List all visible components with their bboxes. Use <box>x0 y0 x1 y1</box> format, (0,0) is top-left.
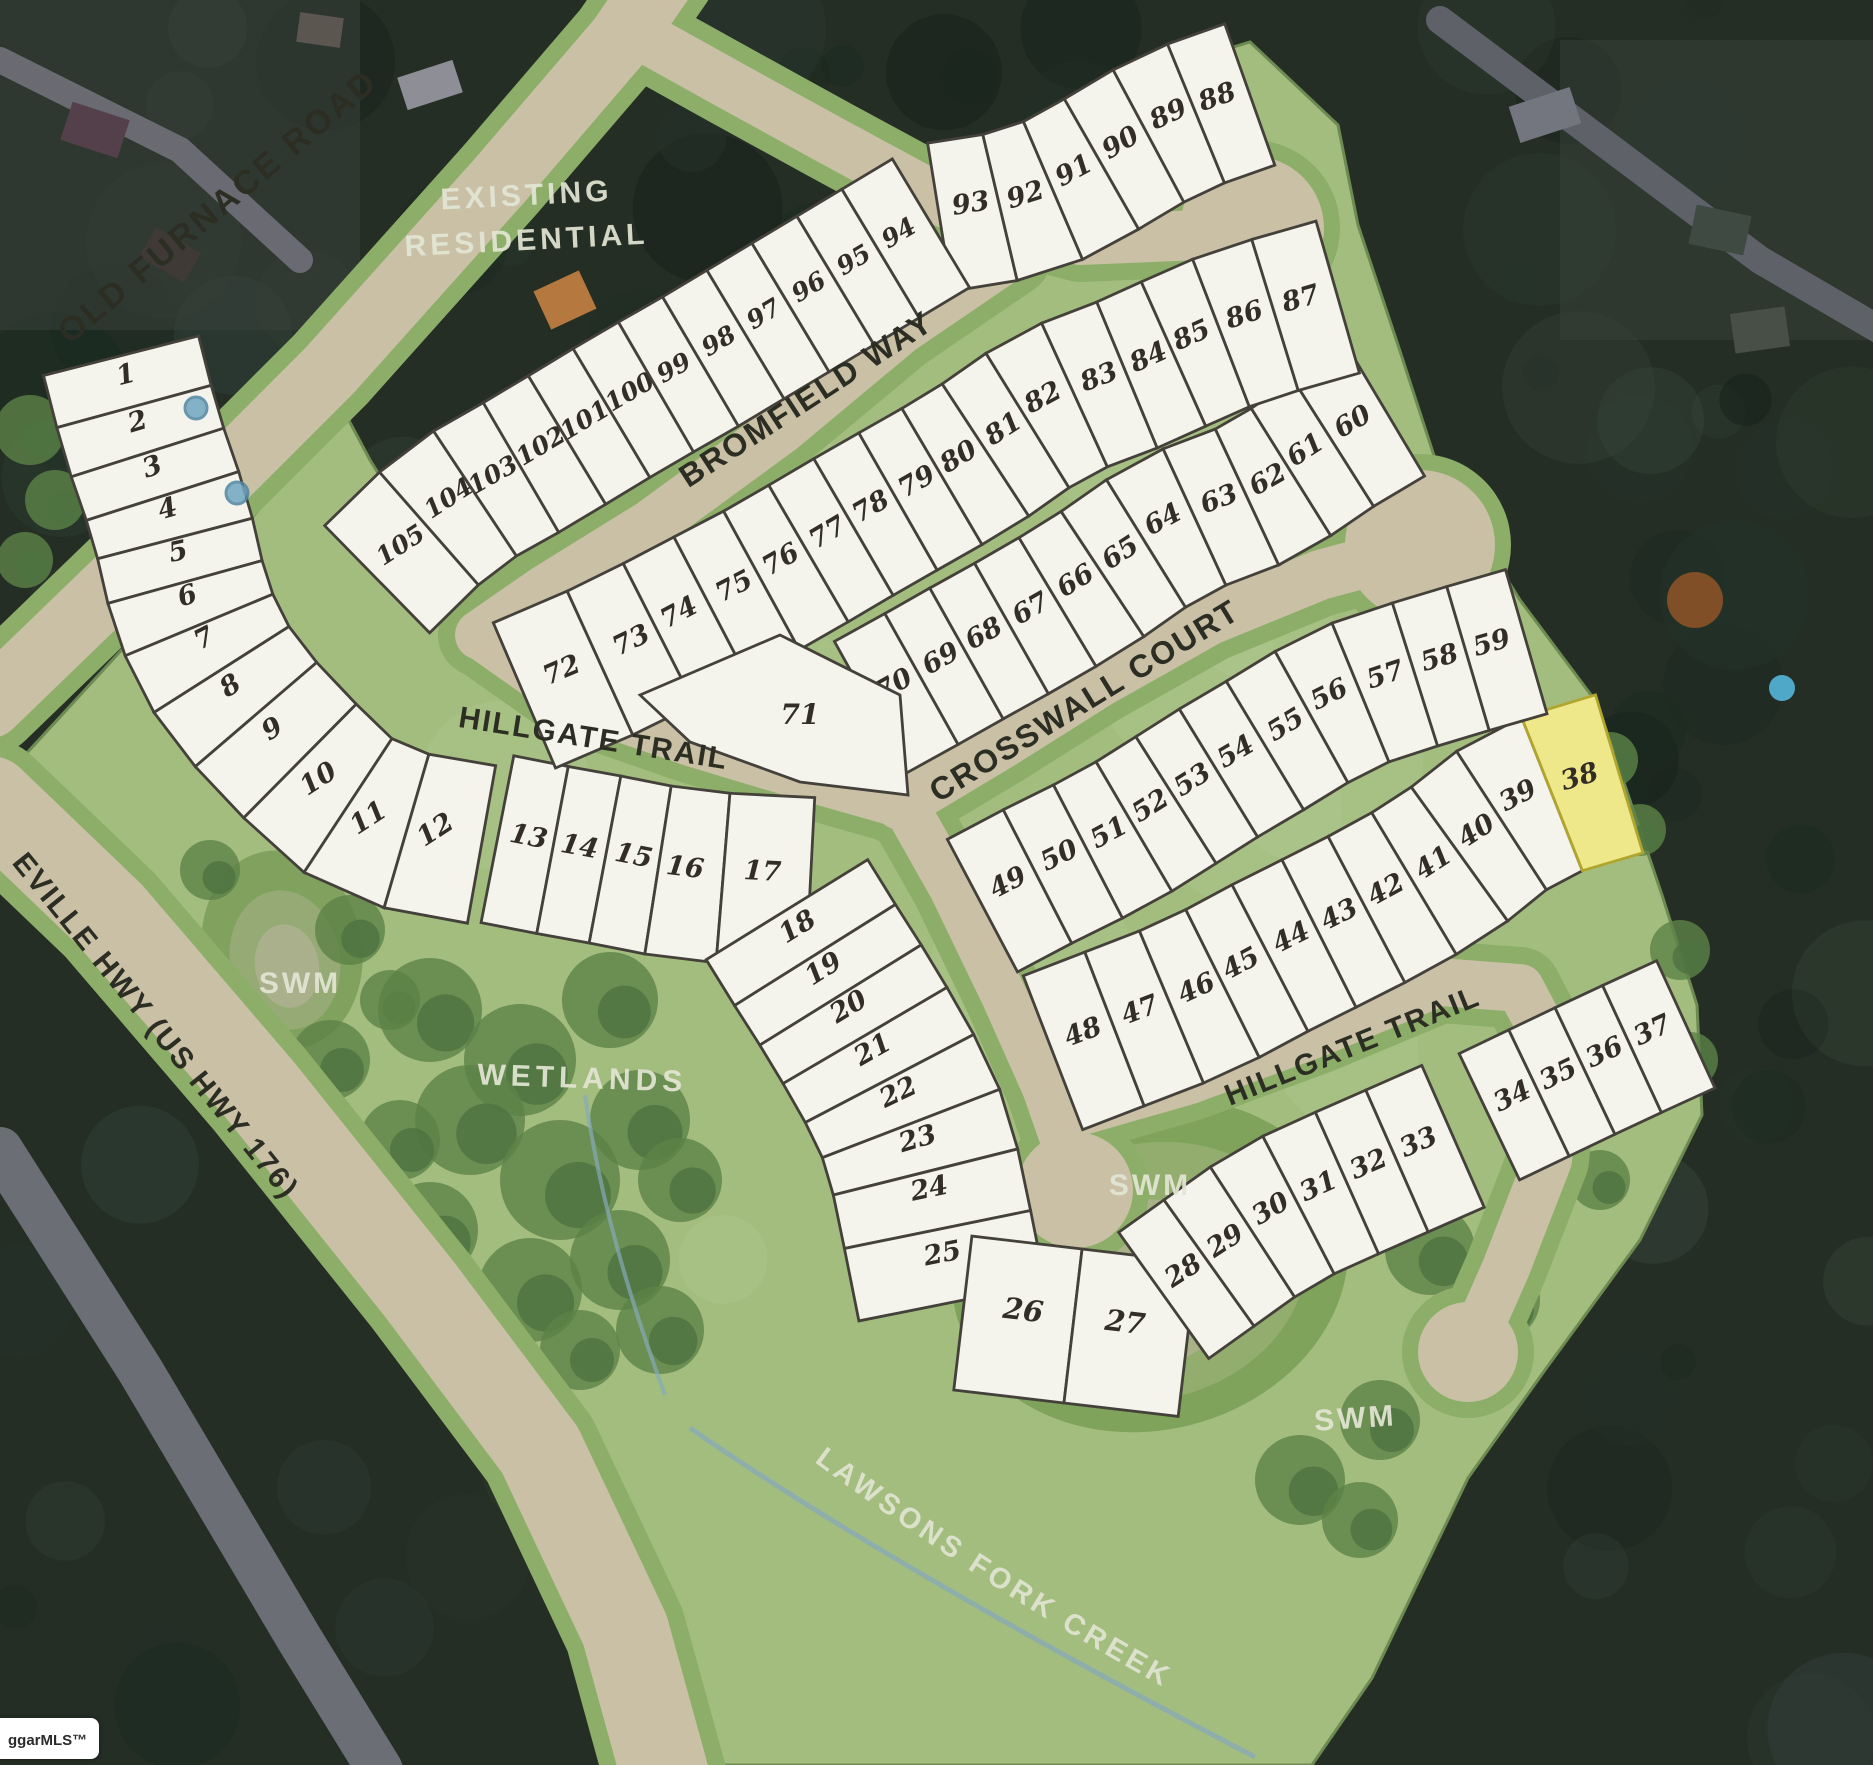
aerial-pool <box>1769 675 1795 701</box>
lot-number-16: 16 <box>664 850 705 885</box>
lot-number-71: 71 <box>781 698 820 731</box>
lot-number-26: 26 <box>1000 1291 1045 1330</box>
lot-number-17: 17 <box>743 855 782 888</box>
site-plan-map: 1234567891011121314151617181920212223242… <box>0 0 1873 1765</box>
area-label-swm-east: SWM <box>1109 1169 1191 1202</box>
aerial-bare-ground <box>1667 572 1723 628</box>
plan-svg: 1234567891011121314151617181920212223242… <box>0 0 1873 1765</box>
area-label-swm-west: SWM <box>259 967 341 1000</box>
lot-pond-dot <box>185 397 207 419</box>
lot-number-93: 93 <box>950 185 992 222</box>
lot-number-27: 27 <box>1102 1303 1147 1342</box>
aerial-building <box>296 12 344 48</box>
aerial-building <box>1730 306 1790 353</box>
lot-number-14: 14 <box>558 828 601 865</box>
cul-de-sac <box>1418 1302 1518 1402</box>
lot-pond-dot <box>226 482 248 504</box>
area-label-swm-southeast: SWM <box>1313 1399 1397 1438</box>
mls-watermark: ggarMLS™ <box>0 1718 99 1759</box>
